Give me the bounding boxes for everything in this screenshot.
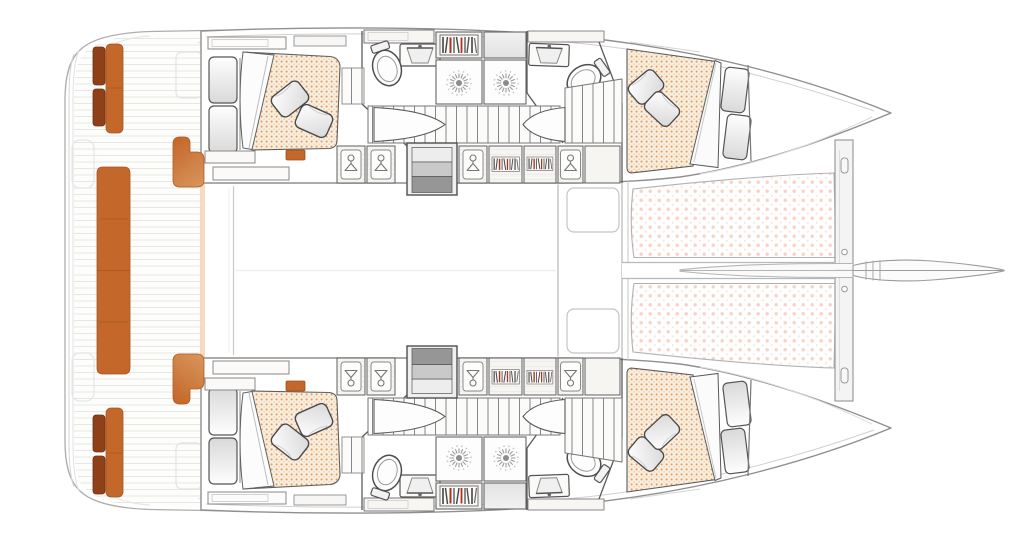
port-half: [65, 28, 1004, 271]
catamaran-floor-plan: [0, 0, 1024, 541]
floor-plan-svg: [0, 0, 1024, 541]
starboard-half-mirrored: [65, 271, 1004, 514]
